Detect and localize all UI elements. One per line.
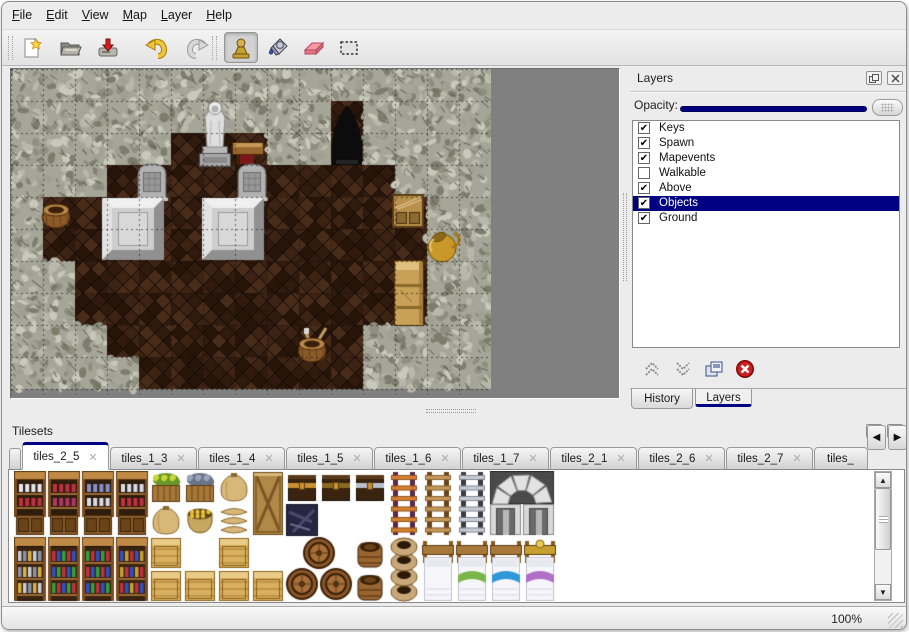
scroll-up-button[interactable]: ▲	[875, 472, 891, 488]
tab-close-icon[interactable]: ✕	[704, 452, 713, 465]
scrollbar-grip	[879, 516, 888, 523]
scrollbar-thumb[interactable]	[875, 488, 891, 550]
tileset-tab-tiles_2_7[interactable]: tiles_2_7✕	[726, 447, 813, 470]
new-document-icon	[20, 36, 44, 60]
tab-label: tiles_	[827, 453, 854, 465]
status-bar: 100%	[2, 606, 906, 630]
open-folder-icon	[58, 36, 82, 60]
tab-label: tiles_1_3	[121, 453, 167, 465]
tab-label: tiles_1_6	[385, 453, 431, 465]
undo-icon	[143, 36, 169, 60]
menu-bar: FileEditViewMapLayerHelp	[12, 6, 246, 28]
layer-checkbox[interactable]: ✔	[638, 122, 650, 134]
scroll-tabs-right-button[interactable]: ▶	[888, 425, 907, 450]
tab-close-icon[interactable]: ✕	[792, 452, 801, 465]
tab-close-icon[interactable]: ✕	[264, 452, 273, 465]
move-layer-down-button[interactable]	[671, 357, 695, 381]
new-document-button[interactable]	[16, 34, 48, 62]
resize-grip[interactable]	[888, 613, 903, 628]
tileset-tab-tiles_2_5[interactable]: tiles_2_5✕	[22, 442, 109, 470]
layer-list: ✔Keys✔Spawn✔MapeventsWalkable✔Above✔Obje…	[632, 120, 900, 348]
select-tool-button[interactable]	[333, 34, 365, 62]
layer-row-above[interactable]: ✔Above	[633, 181, 899, 196]
tileset-tab-tiles_2_1[interactable]: tiles_2_1✕	[550, 447, 637, 470]
tileset-tab-tiles[interactable]: tiles_	[814, 447, 868, 470]
tab-label: tiles_1_4	[209, 453, 255, 465]
delete-layer-button[interactable]	[733, 357, 757, 381]
layer-row-mapevents[interactable]: ✔Mapevents	[633, 151, 899, 166]
save-icon	[96, 36, 120, 60]
map-viewport[interactable]	[10, 68, 620, 399]
opacity-label: Opacity:	[634, 98, 678, 112]
app-window: FileEditViewMapLayerHelp	[1, 1, 907, 630]
eraser-tool-button[interactable]	[298, 34, 330, 62]
selection-rectangle-icon	[337, 37, 361, 59]
layer-label: Walkable	[659, 167, 706, 179]
tileset-tabbar: tiles_2_5✕tiles_1_3✕tiles_1_4✕tiles_1_5✕…	[9, 441, 905, 470]
layer-checkbox[interactable]: ✔	[638, 152, 650, 164]
zoom-level: 100%	[831, 612, 862, 626]
duplicate-layer-button[interactable]	[702, 357, 726, 381]
layer-row-keys[interactable]: ✔Keys	[633, 121, 899, 136]
splitter-grip	[623, 193, 627, 281]
chevron-down-icon	[674, 360, 692, 378]
map-canvas[interactable]	[11, 69, 491, 395]
menu-map[interactable]: Map	[123, 8, 147, 22]
move-layer-up-button[interactable]	[640, 357, 664, 381]
stamp-tool-button[interactable]	[224, 32, 258, 63]
tab-close-icon[interactable]: ✕	[176, 452, 185, 465]
float-panel-button[interactable]	[866, 71, 882, 85]
redo-icon	[185, 36, 211, 60]
tileset-tab-tiles_1_3[interactable]: tiles_1_3✕	[110, 447, 197, 470]
tileset-canvas[interactable]	[14, 471, 570, 602]
layer-checkbox[interactable]: ✔	[638, 197, 650, 209]
layer-toolbar	[632, 355, 900, 383]
layer-checkbox[interactable]: ✔	[638, 212, 650, 224]
tab-close-icon[interactable]: ✕	[440, 452, 449, 465]
undo-button[interactable]	[140, 34, 172, 62]
scroll-down-button[interactable]: ▼	[875, 584, 891, 600]
tilesets-panel-title: Tilesets	[12, 424, 53, 438]
open-button[interactable]	[54, 34, 86, 62]
toolbar-drag-handle[interactable]	[8, 36, 13, 60]
layer-row-walkable[interactable]: Walkable	[633, 166, 899, 181]
menu-edit[interactable]: Edit	[46, 8, 68, 22]
splitter-grip	[426, 409, 476, 413]
tab-close-icon[interactable]: ✕	[528, 452, 537, 465]
eraser-icon	[301, 36, 327, 60]
menu-help[interactable]: Help	[206, 8, 232, 22]
duplicate-icon	[705, 361, 724, 378]
layer-label: Above	[659, 182, 692, 194]
layer-label: Objects	[659, 197, 698, 209]
dock-tabbar: History Layers	[630, 388, 907, 415]
layers-panel: Layers Opacity: ✔Keys✔Spawn✔MapeventsWal…	[630, 68, 907, 420]
chevron-up-icon	[643, 360, 661, 378]
tab-close-icon[interactable]: ✕	[88, 451, 97, 464]
panel-separator	[630, 91, 907, 93]
tileset-tab-tiles_1_6[interactable]: tiles_1_6✕	[374, 447, 461, 470]
menu-layer[interactable]: Layer	[161, 8, 192, 22]
tab-layers[interactable]: Layers	[695, 389, 752, 407]
float-icon	[869, 74, 879, 83]
tab-close-icon[interactable]: ✕	[616, 452, 625, 465]
tab-label: tiles_1_7	[473, 453, 519, 465]
tileset-tab-tiles_2_6[interactable]: tiles_2_6✕	[638, 447, 725, 470]
slider-grip	[881, 103, 894, 112]
save-button[interactable]	[92, 34, 124, 62]
layer-row-objects[interactable]: ✔Objects	[633, 196, 899, 211]
layer-label: Mapevents	[659, 152, 715, 164]
menu-view[interactable]: View	[82, 8, 109, 22]
opacity-slider[interactable]	[680, 106, 867, 112]
redo-button[interactable]	[182, 34, 214, 62]
close-icon	[891, 74, 900, 83]
tileset-scrollbar[interactable]: ▲ ▼	[874, 471, 892, 601]
tileset-tab-tiles_1_7[interactable]: tiles_1_7✕	[462, 447, 549, 470]
tab-label: tiles_2_1	[561, 453, 607, 465]
tileset-tab-tiles_1_5[interactable]: tiles_1_5✕	[286, 447, 373, 470]
tab-label: tiles_2_7	[737, 453, 783, 465]
stamp-icon	[229, 36, 253, 60]
layer-checkbox[interactable]: ✔	[638, 137, 650, 149]
horizontal-splitter[interactable]	[10, 400, 620, 421]
layer-checkbox[interactable]	[638, 167, 650, 179]
opacity-slider-handle[interactable]	[872, 99, 903, 116]
close-panel-button[interactable]	[887, 71, 903, 85]
layer-row-spawn[interactable]: ✔Spawn	[633, 136, 899, 151]
layers-panel-title: Layers	[637, 71, 673, 85]
tileset-view[interactable]: ▲ ▼	[8, 469, 905, 603]
menu-file[interactable]: File	[12, 8, 32, 22]
layer-label: Keys	[659, 122, 685, 134]
layer-checkbox[interactable]: ✔	[638, 182, 650, 194]
layer-row-ground[interactable]: ✔Ground	[633, 211, 899, 226]
delete-icon	[735, 359, 755, 379]
toolbar-drag-handle[interactable]	[212, 36, 217, 60]
tab-label: tiles_2_6	[649, 453, 695, 465]
fill-tool-button[interactable]	[262, 34, 294, 62]
tab-history[interactable]: History	[631, 389, 693, 409]
tileset-tab-tiles_1_4[interactable]: tiles_1_4✕	[198, 447, 285, 470]
toolbar	[2, 29, 906, 66]
tab-label: tiles_2_5	[33, 451, 79, 463]
tab-close-icon[interactable]: ✕	[352, 452, 361, 465]
clipped-tab-stub[interactable]	[9, 448, 21, 470]
tilesets-panel: Tilesets tiles_2_5✕tiles_1_3✕tiles_1_4✕t…	[6, 422, 907, 605]
layer-label: Ground	[659, 212, 697, 224]
layer-label: Spawn	[659, 137, 694, 149]
fill-bucket-icon	[266, 36, 290, 60]
scroll-tabs-left-button[interactable]: ◀	[867, 425, 886, 450]
vertical-splitter[interactable]	[621, 68, 630, 399]
tab-label: tiles_1_5	[297, 453, 343, 465]
